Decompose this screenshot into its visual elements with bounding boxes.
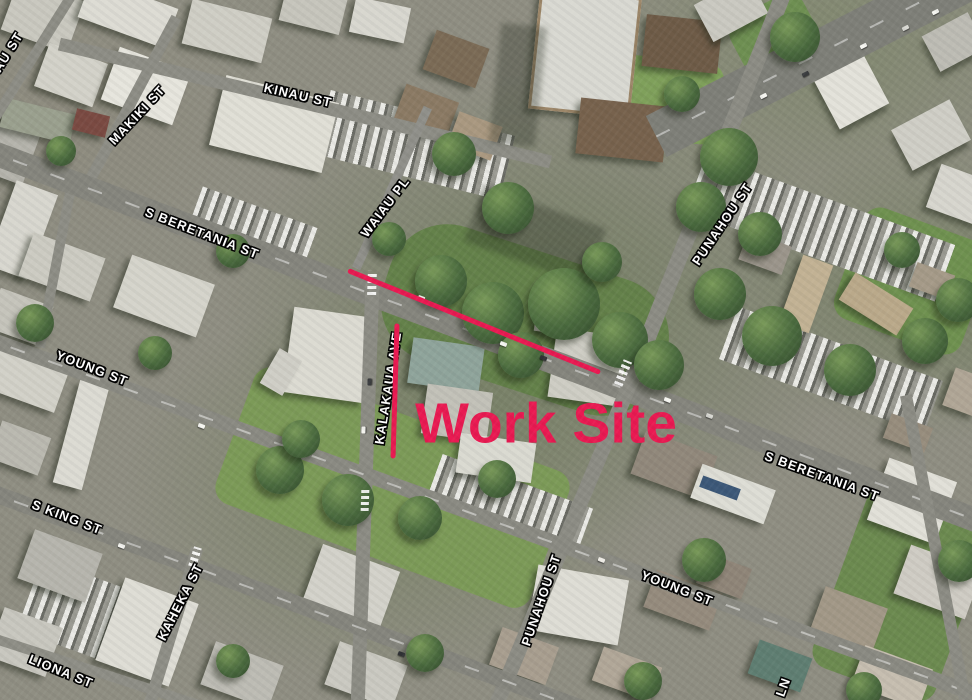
work-site-line-kalakaua [391, 323, 400, 458]
work-site-line-beretania [347, 268, 601, 375]
work-site-label: Work Site [415, 396, 677, 453]
aerial-map: KINAU STMAKIKI STAU STS BERETANIA STWAIA… [0, 0, 972, 700]
work-site-lines [0, 0, 972, 700]
